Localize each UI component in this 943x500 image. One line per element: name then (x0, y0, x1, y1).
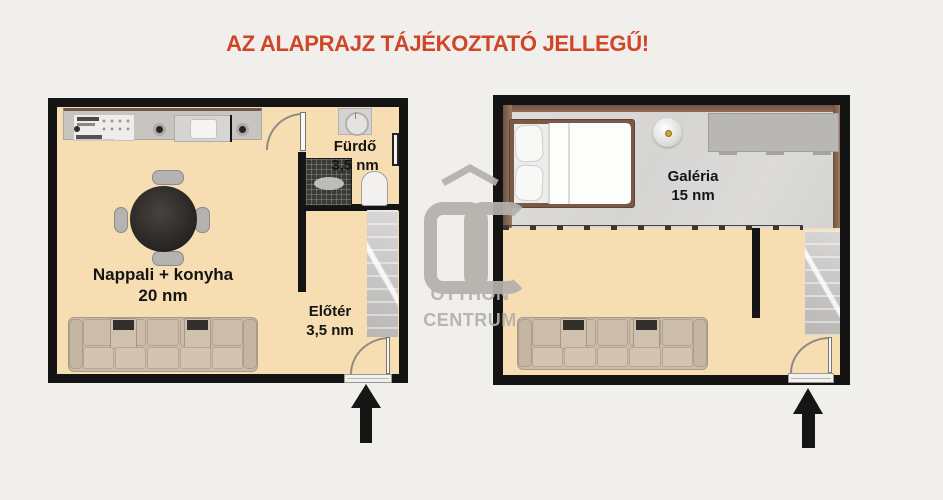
wardrobe-icon (708, 113, 839, 152)
chair-icon (114, 207, 128, 233)
burner-icon (153, 123, 166, 136)
watermark-line1: OTTHON (410, 284, 530, 305)
watermark-logo: OTTHON CENTRUM (410, 160, 530, 350)
sofa-headrest (110, 318, 137, 349)
sofa-headrest (184, 318, 211, 349)
entrance-door-arc (790, 337, 830, 373)
stove-icon (73, 114, 135, 141)
sofa-icon (517, 317, 708, 370)
pillow-icon (514, 124, 544, 162)
washing-machine-icon (338, 108, 372, 135)
entrance-arrow (351, 384, 381, 408)
logo-letter-c (464, 202, 528, 294)
sofa-headrest (560, 318, 587, 349)
floorplan-right: Galéria 15 nm (493, 95, 850, 385)
entrance-arrow-shaft (802, 413, 815, 448)
chair-icon (195, 207, 210, 233)
sofa-icon (68, 317, 258, 372)
entrance-arrow-shaft (360, 407, 372, 443)
entrance-door-leaf (828, 337, 832, 373)
disclaimer-title: AZ ALAPRAJZ TÁJÉKOZTATÓ JELLEGŰ! (0, 31, 875, 57)
entrance-threshold (788, 373, 834, 383)
room-label-bath: Fürdő 3,5 nm (315, 137, 395, 175)
stairs-icon (367, 210, 398, 337)
kitchen-counter (63, 108, 262, 140)
door-leaf (300, 112, 306, 151)
entrance-door-arc (350, 337, 390, 374)
room-label-hall: Előtér 3,5 nm (290, 302, 370, 340)
room-label-gallery: Galéria 15 nm (643, 167, 743, 205)
entrance-door-leaf (386, 337, 390, 374)
sink-icon (174, 115, 232, 142)
room-label-living: Nappali + konyha 20 nm (73, 264, 253, 306)
floorplan-image: AZ ALAPRAJZ TÁJÉKOZTATÓ JELLEGŰ! Na (0, 0, 943, 500)
door-arc (266, 113, 303, 150)
entrance-threshold (344, 374, 392, 383)
sofa-headrest (633, 318, 660, 349)
ceiling-lamp-icon (653, 118, 682, 147)
watermark-line2: CENTRUM (410, 310, 530, 331)
roof-icon (435, 162, 505, 188)
toilet-icon (361, 171, 388, 206)
wood-trim (503, 105, 840, 112)
interior-wall (752, 228, 760, 318)
burner-icon (236, 123, 249, 136)
floorplan-left: Nappali + konyha 20 nm Fürdő 3,5 nm Előt… (48, 98, 408, 383)
chair-icon (152, 170, 184, 185)
stairs-icon (805, 230, 840, 335)
entrance-arrow (793, 388, 823, 414)
counter-divider (230, 115, 232, 142)
dining-table-icon (130, 186, 197, 252)
